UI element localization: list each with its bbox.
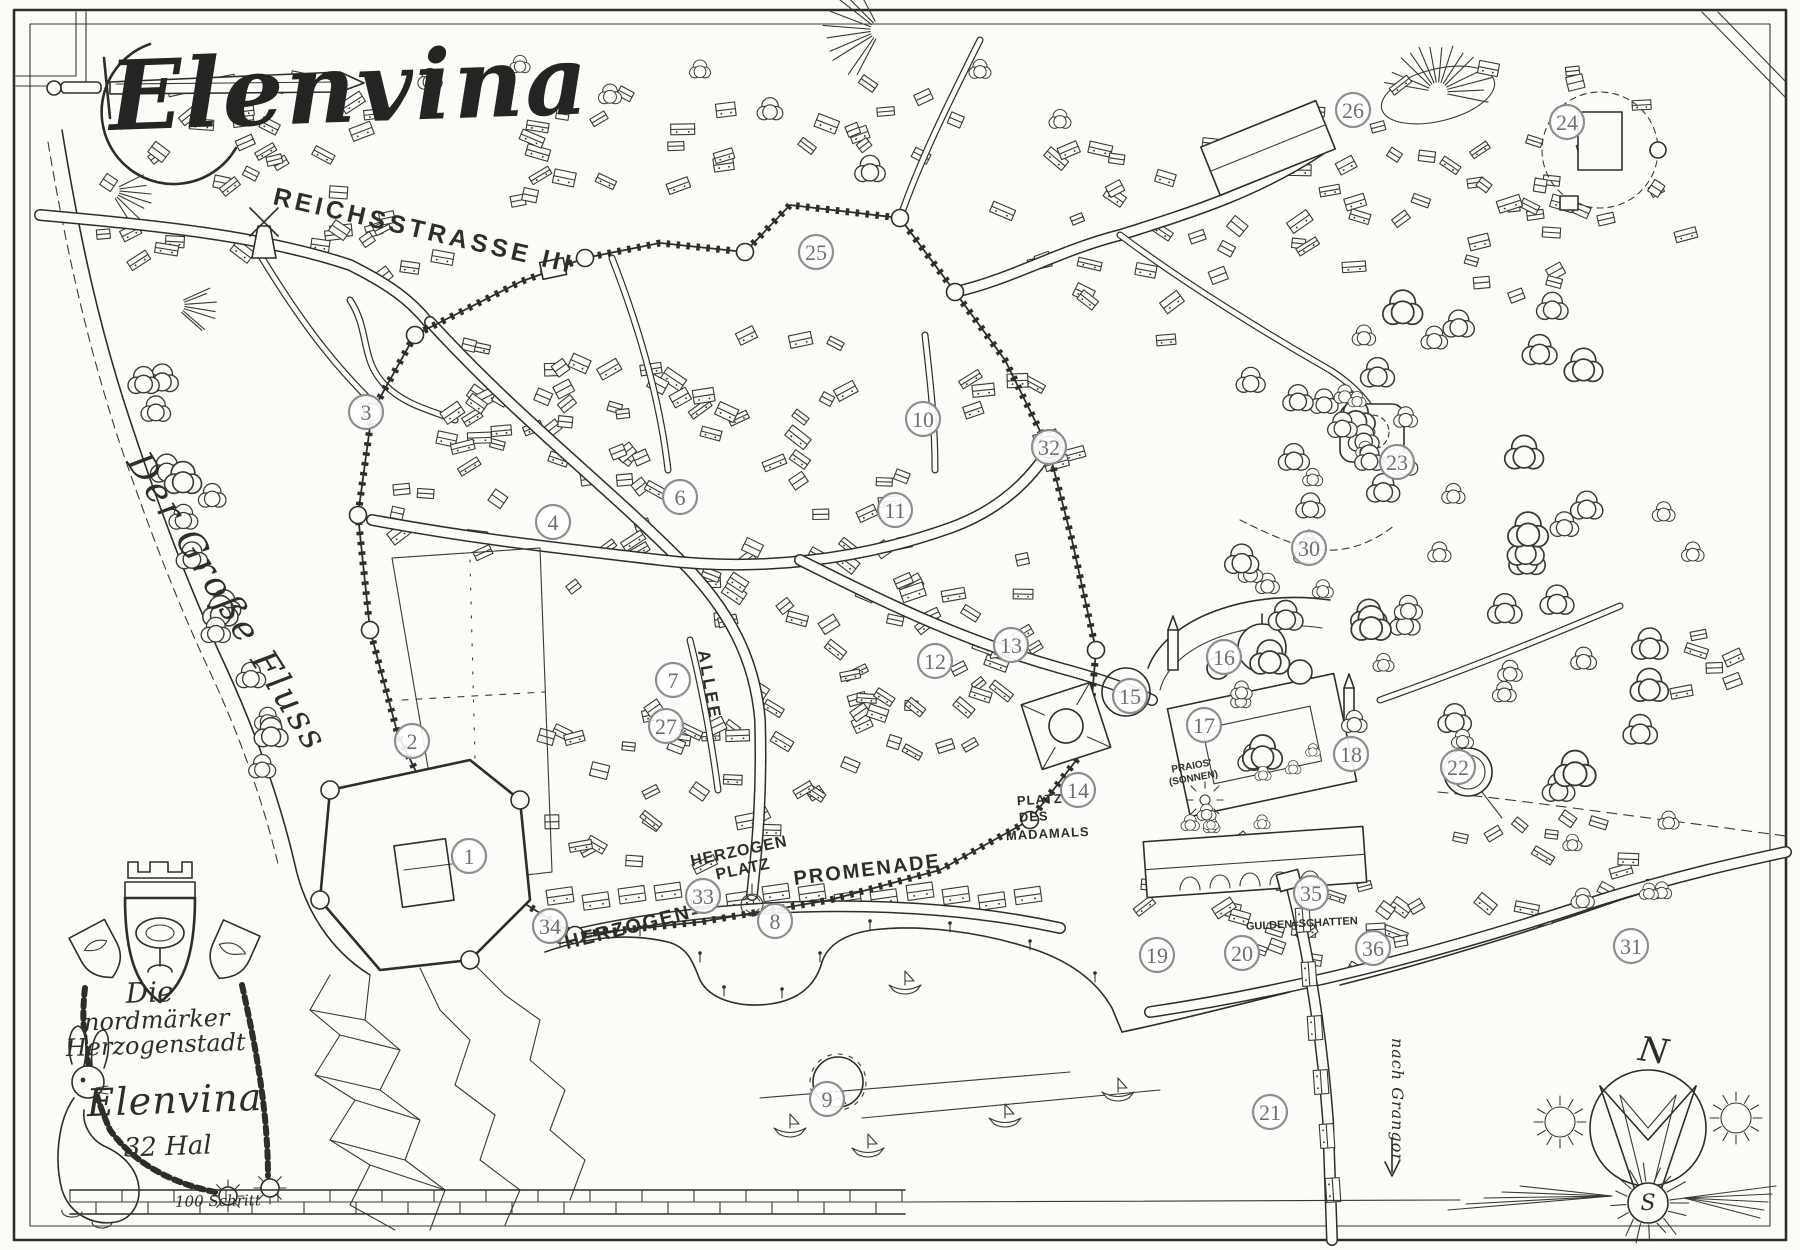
house — [762, 883, 790, 901]
label-compassS: S — [1640, 1191, 1655, 1216]
house — [877, 107, 895, 117]
house — [692, 387, 715, 404]
house — [671, 124, 695, 135]
map-marker-25: 25 — [799, 235, 833, 269]
map-marker-3: 3 — [349, 395, 383, 429]
marker-number: 10 — [912, 407, 934, 432]
house — [1618, 853, 1639, 866]
map-marker-33: 33 — [686, 879, 720, 913]
marker-number: 21 — [1259, 1100, 1281, 1125]
marker-number: 14 — [1067, 778, 1089, 803]
house — [1473, 276, 1490, 289]
marker-number: 13 — [1000, 633, 1022, 658]
house — [1393, 935, 1407, 948]
house — [1533, 178, 1547, 193]
map-marker-8: 8 — [758, 904, 792, 938]
map-page: ElenvinaREICHSSTRASSE IIIDer Große Fluss… — [0, 0, 1800, 1250]
label-cartdate: 32 Hal — [123, 1130, 212, 1163]
map-marker-17: 17 — [1187, 708, 1221, 742]
marker-number: 20 — [1231, 941, 1253, 966]
house — [417, 488, 434, 498]
house — [906, 882, 934, 900]
house — [616, 409, 630, 419]
house — [1307, 1016, 1323, 1041]
house — [491, 425, 512, 437]
map-marker-27: 27 — [649, 709, 683, 743]
house — [96, 229, 110, 239]
map-marker-26: 26 — [1336, 93, 1370, 127]
marker-number: 36 — [1362, 936, 1384, 961]
city-map-canvas: ElenvinaREICHSSTRASSE IIIDer Große Fluss… — [0, 0, 1800, 1250]
side-sunburst-right — [1721, 1103, 1751, 1133]
marker-number: 4 — [548, 510, 559, 535]
house — [400, 261, 420, 275]
house — [813, 509, 829, 519]
map-marker-18: 18 — [1334, 737, 1368, 771]
house — [393, 483, 410, 495]
marker-number: 23 — [1386, 450, 1408, 475]
marker-number: 33 — [692, 884, 714, 909]
house — [522, 188, 539, 203]
marker-number: 1 — [464, 844, 475, 869]
marker-number: 15 — [1119, 684, 1141, 709]
map-marker-21: 21 — [1253, 1095, 1287, 1129]
marker-number: 17 — [1193, 713, 1215, 738]
map-marker-6: 6 — [663, 480, 697, 514]
house — [1014, 886, 1042, 904]
house — [1542, 227, 1561, 238]
map-marker-14: 14 — [1061, 773, 1095, 807]
marker-number: 8 — [770, 909, 781, 934]
map-marker-9: 9 — [810, 1082, 844, 1116]
map-marker-24: 24 — [1550, 105, 1584, 139]
house — [1301, 962, 1317, 987]
map-marker-36: 36 — [1356, 931, 1390, 965]
marker-number: 34 — [539, 914, 561, 939]
map-marker-13: 13 — [994, 628, 1028, 662]
marker-number: 16 — [1213, 645, 1235, 670]
house — [618, 885, 646, 903]
house — [1313, 1070, 1329, 1095]
marker-number: 18 — [1340, 742, 1362, 767]
marker-number: 9 — [822, 1087, 833, 1112]
marker-number: 30 — [1298, 536, 1320, 561]
house — [1706, 662, 1723, 673]
house — [668, 142, 684, 151]
marker-number: 22 — [1447, 755, 1469, 780]
house — [546, 887, 574, 905]
house — [978, 892, 1006, 910]
map-marker-30: 30 — [1292, 531, 1326, 565]
house — [972, 383, 995, 397]
house — [942, 886, 970, 904]
house — [1319, 1124, 1335, 1149]
map-marker-7: 7 — [656, 663, 690, 697]
marker-number: 19 — [1146, 943, 1168, 968]
house — [1632, 100, 1651, 110]
map-marker-23: 23 — [1380, 445, 1414, 479]
map-marker-34: 34 — [533, 909, 567, 943]
house — [1108, 153, 1125, 165]
house — [622, 742, 636, 751]
house — [545, 815, 559, 829]
map-marker-31: 31 — [1614, 929, 1648, 963]
house — [723, 774, 742, 784]
map-marker-35: 35 — [1294, 876, 1328, 910]
map-marker-2: 2 — [395, 724, 429, 758]
map-marker-20: 20 — [1225, 936, 1259, 970]
label-grangor: nach Grangor — [1388, 1038, 1407, 1162]
house — [1156, 334, 1176, 346]
marker-number: 26 — [1342, 98, 1364, 123]
house — [626, 855, 643, 867]
map-marker-19: 19 — [1140, 938, 1174, 972]
marker-number: 3 — [361, 400, 372, 425]
marker-number: 24 — [1556, 110, 1578, 135]
marker-number: 31 — [1620, 934, 1642, 959]
map-marker-1: 1 — [452, 839, 486, 873]
marker-number: 6 — [675, 485, 686, 510]
house — [1015, 553, 1029, 566]
map-marker-16: 16 — [1207, 640, 1241, 674]
marker-number: 7 — [668, 668, 679, 693]
label-cartname: Elenvina — [85, 1075, 263, 1125]
house — [1013, 589, 1033, 599]
marker-number: 12 — [924, 649, 946, 674]
house — [616, 474, 632, 487]
house — [558, 416, 573, 428]
house — [1545, 829, 1558, 839]
marker-number: 27 — [655, 714, 677, 739]
map-marker-10: 10 — [906, 402, 940, 436]
map-marker-15: 15 — [1113, 679, 1147, 713]
label-scalelbl: 100 Schritt — [175, 1191, 262, 1211]
label-title: Elenvina — [104, 23, 591, 153]
side-sunburst-left — [1545, 1107, 1575, 1137]
mural-crown — [128, 862, 192, 878]
marker-number: 25 — [805, 240, 827, 265]
house — [876, 478, 892, 487]
map-marker-11: 11 — [878, 493, 912, 527]
house — [654, 882, 682, 900]
label-madamals2: DES — [1019, 808, 1049, 825]
marker-number: 35 — [1300, 881, 1322, 906]
map-marker-12: 12 — [918, 644, 952, 678]
map-marker-22: 22 — [1441, 750, 1475, 784]
house — [1418, 150, 1435, 162]
house — [726, 730, 750, 742]
marker-number: 32 — [1038, 435, 1060, 460]
house — [715, 102, 736, 118]
house — [582, 892, 610, 910]
marker-number: 2 — [407, 729, 418, 754]
house — [1342, 261, 1366, 273]
house — [1325, 1178, 1341, 1203]
label-madamals1: PLATZ — [1016, 791, 1063, 808]
map-marker-4: 4 — [536, 505, 570, 539]
marker-number: 11 — [884, 498, 905, 523]
house — [857, 693, 877, 703]
map-marker-32: 32 — [1032, 430, 1066, 464]
